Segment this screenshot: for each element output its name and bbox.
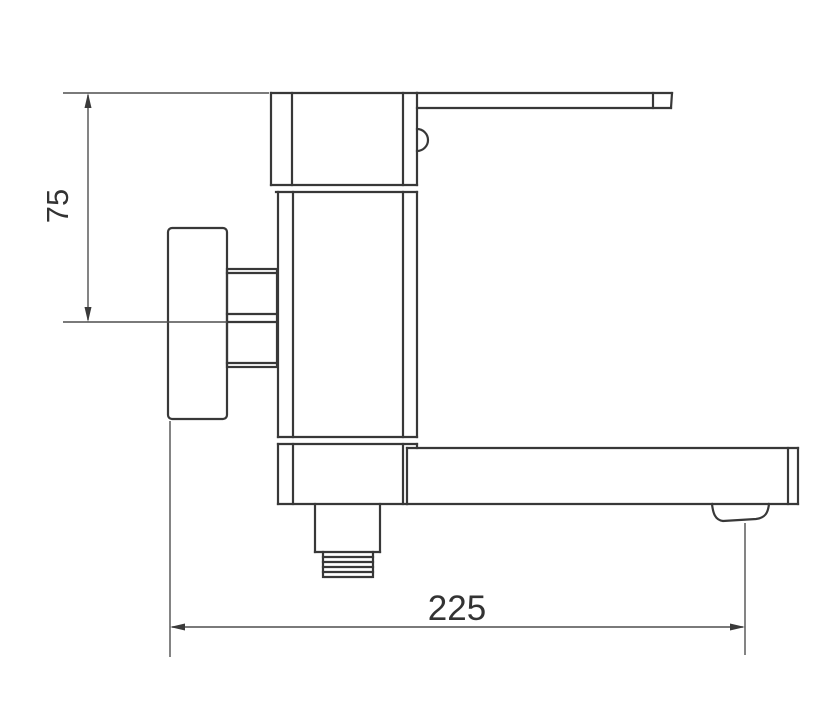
dim225-label: 225 bbox=[428, 589, 486, 628]
mounting-nut bbox=[227, 269, 277, 367]
handle-pivot-arc bbox=[417, 129, 428, 151]
dim75-arrow-down bbox=[85, 307, 92, 322]
faucet-body bbox=[271, 93, 428, 504]
dim225-arrow-left bbox=[170, 624, 185, 631]
dim75-arrow-up bbox=[85, 93, 92, 108]
spout-outlet bbox=[712, 504, 769, 521]
dim75-label: 75 bbox=[40, 189, 75, 223]
dim225-arrow-right bbox=[730, 624, 745, 631]
wall-flange bbox=[168, 228, 227, 419]
lever-handle bbox=[417, 93, 672, 108]
mid-section bbox=[278, 192, 417, 444]
dimension-225: 225 bbox=[170, 421, 745, 657]
hose-connector bbox=[315, 504, 380, 577]
dimension-75: 75 bbox=[40, 93, 269, 322]
spout bbox=[407, 448, 798, 521]
faucet-dimension-drawing: 75 225 bbox=[0, 0, 840, 708]
base-section bbox=[278, 444, 417, 504]
nut-outline bbox=[227, 269, 277, 367]
handle-right-edge bbox=[671, 93, 672, 108]
connector-threads bbox=[323, 552, 373, 577]
technical-drawing-page: 75 225 bbox=[0, 0, 840, 708]
valve-section bbox=[271, 93, 417, 192]
